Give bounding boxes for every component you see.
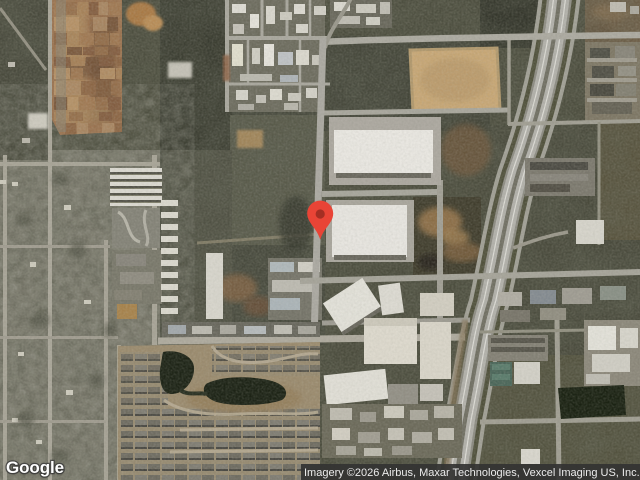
svg-text:Google: Google [6, 458, 64, 477]
svg-text:Imagery ©2026 Airbus, Maxar Te: Imagery ©2026 Airbus, Maxar Technologies… [304, 467, 640, 479]
